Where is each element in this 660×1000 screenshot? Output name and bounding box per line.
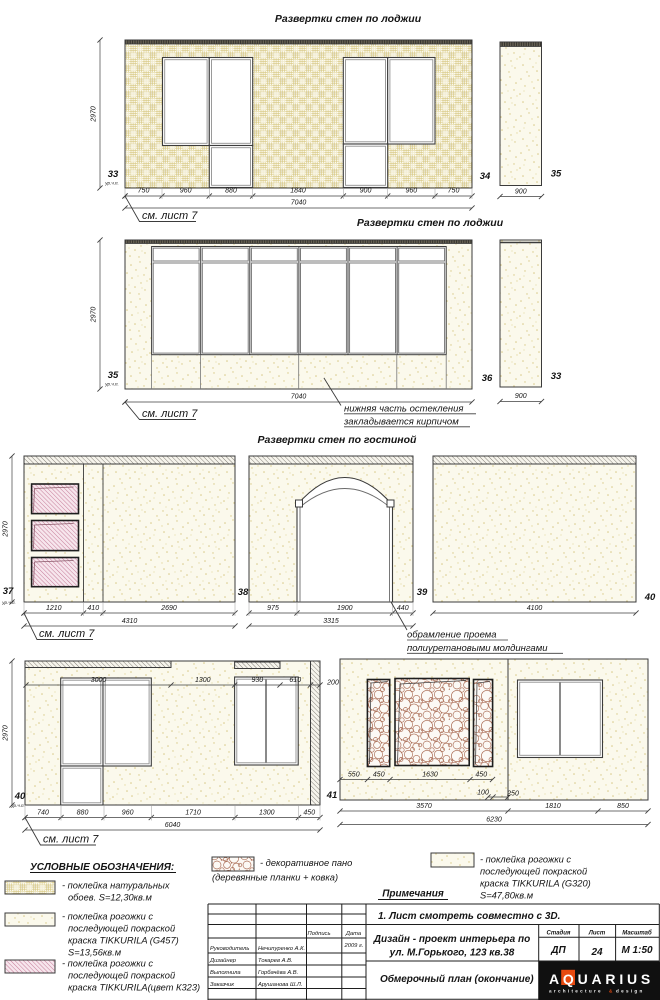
svg-text:последующей покраской: последующей покраской <box>68 924 175 934</box>
svg-text:250: 250 <box>506 791 519 798</box>
svg-text:40: 40 <box>14 791 26 802</box>
svg-text:6230: 6230 <box>486 817 502 824</box>
svg-text:2970: 2970 <box>3 725 10 742</box>
svg-text:410: 410 <box>87 605 99 612</box>
svg-text:Выполнила: Выполнила <box>210 970 241 976</box>
svg-text:УСЛОВНЫЕ ОБОЗНАЧЕНИЯ:: УСЛОВНЫЕ ОБОЗНАЧЕНИЯ: <box>30 862 174 873</box>
svg-text:4100: 4100 <box>527 605 543 612</box>
svg-text:М 1:50: М 1:50 <box>621 945 653 956</box>
svg-text:41: 41 <box>326 790 338 801</box>
svg-text:2970: 2970 <box>91 307 98 324</box>
svg-text:ур.ч.п.: ур.ч.п. <box>1 600 16 605</box>
svg-text:880: 880 <box>77 810 89 817</box>
svg-text:740: 740 <box>37 810 49 817</box>
svg-text:Руководитель: Руководитель <box>210 946 249 952</box>
svg-text:- декоративное пано: - декоративное пано <box>260 858 352 868</box>
svg-text:1210: 1210 <box>46 605 62 612</box>
svg-text:Дизайнер: Дизайнер <box>209 957 237 964</box>
svg-text:440: 440 <box>397 605 409 612</box>
svg-text:2009 г.: 2009 г. <box>344 943 364 949</box>
svg-text:Примечания: Примечания <box>382 889 444 900</box>
svg-text:100: 100 <box>477 790 489 797</box>
svg-text:750: 750 <box>138 188 150 195</box>
svg-text:960: 960 <box>122 810 134 817</box>
svg-text:2970: 2970 <box>91 106 98 123</box>
svg-text:33: 33 <box>551 371 562 382</box>
svg-text:S=13,56кв.м: S=13,56кв.м <box>68 948 122 958</box>
svg-text:39: 39 <box>417 587 428 598</box>
svg-text:краска TIKKURILA (G320): краска TIKKURILA (G320) <box>480 879 591 889</box>
svg-text:1900: 1900 <box>337 605 353 612</box>
svg-text:ул. М.Горького, 123 кв.38: ул. М.Горького, 123 кв.38 <box>389 948 515 959</box>
svg-text:см. лист 7: см. лист 7 <box>142 408 198 420</box>
svg-text:Подпись: Подпись <box>308 931 331 937</box>
svg-text:Развертки стен по лоджии: Развертки стен по лоджии <box>275 13 422 25</box>
svg-text:см. лист 7: см. лист 7 <box>142 210 198 222</box>
svg-text:6040: 6040 <box>165 822 181 829</box>
svg-text:35: 35 <box>108 370 119 381</box>
svg-text:4310: 4310 <box>122 618 138 625</box>
svg-text:975: 975 <box>267 605 279 612</box>
svg-text:(деревянные планки + ковка): (деревянные планки + ковка) <box>212 873 338 883</box>
svg-text:Обмерочный план (окончание): Обмерочный план (окончание) <box>380 973 534 985</box>
svg-text:2970: 2970 <box>3 521 10 538</box>
svg-text:ур.ч.п.: ур.ч.п. <box>10 803 25 808</box>
svg-text:550: 550 <box>348 772 360 779</box>
svg-text:850: 850 <box>617 803 629 810</box>
svg-text:обрамление проема: обрамление проема <box>407 630 497 641</box>
svg-text:960: 960 <box>406 188 418 195</box>
svg-text:1300: 1300 <box>195 677 211 684</box>
svg-text:960: 960 <box>180 188 192 195</box>
svg-text:37: 37 <box>3 586 14 597</box>
svg-text:450: 450 <box>475 772 487 779</box>
svg-text:930: 930 <box>251 677 263 684</box>
svg-text:36: 36 <box>482 373 493 384</box>
svg-text:7040: 7040 <box>291 200 307 207</box>
svg-text:Нечипуренко А.К.: Нечипуренко А.К. <box>258 946 305 952</box>
svg-text:880: 880 <box>225 188 237 195</box>
svg-text:33: 33 <box>108 169 119 180</box>
svg-text:450: 450 <box>373 772 385 779</box>
svg-text:1710: 1710 <box>185 810 201 817</box>
svg-text:Масштаб: Масштаб <box>622 930 652 937</box>
svg-text:AQUARIUS: AQUARIUS <box>549 971 654 987</box>
svg-text:- поклейка рогожки с: - поклейка рогожки с <box>62 912 153 922</box>
svg-text:краска TIKKURILA(цвет К323): краска TIKKURILA(цвет К323) <box>68 983 200 993</box>
svg-text:последующей покраской: последующей покраской <box>480 867 587 877</box>
svg-text:7040: 7040 <box>291 394 307 401</box>
svg-text:см. лист 7: см. лист 7 <box>39 628 95 640</box>
svg-text:3000: 3000 <box>91 677 107 684</box>
svg-text:закладывается кирпичом: закладывается кирпичом <box>343 417 459 428</box>
svg-text:Заказчик: Заказчик <box>210 982 234 988</box>
svg-text:нижняя часть остекления: нижняя часть остекления <box>344 404 464 415</box>
svg-text:- поклейка рогожки с: - поклейка рогожки с <box>62 959 153 969</box>
svg-text:3315: 3315 <box>323 618 339 625</box>
svg-text:Токарев А.В.: Токарев А.В. <box>258 958 293 964</box>
svg-text:ур.ч.п.: ур.ч.п. <box>104 382 119 387</box>
svg-text:38: 38 <box>238 587 249 598</box>
svg-text:обоев. S=12,30кв.м: обоев. S=12,30кв.м <box>68 893 152 903</box>
svg-text:architecture: architecture <box>549 989 603 994</box>
svg-text:2690: 2690 <box>160 605 177 612</box>
svg-text:Дата: Дата <box>345 931 362 937</box>
svg-text:1810: 1810 <box>545 803 561 810</box>
svg-text:200: 200 <box>326 680 339 687</box>
svg-text:35: 35 <box>551 169 562 180</box>
svg-text:краска TIKKURILA (G457): краска TIKKURILA (G457) <box>68 936 179 946</box>
svg-text:1. Лист смотреть совместно с 3: 1. Лист смотреть совместно с 3D. <box>378 911 560 922</box>
svg-text:34: 34 <box>480 171 491 182</box>
svg-text:900: 900 <box>515 189 527 196</box>
svg-text:Развертки стен по лоджии: Развертки стен по лоджии <box>357 217 504 229</box>
svg-text:450: 450 <box>303 810 315 817</box>
svg-text:полиуретановыми молдингами: полиуретановыми молдингами <box>407 643 548 654</box>
svg-text:ДП: ДП <box>550 945 566 956</box>
svg-text:ур.ч.п.: ур.ч.п. <box>104 181 119 186</box>
svg-text:Развертки стен по гостиной: Развертки стен по гостиной <box>258 434 418 446</box>
svg-text:Дизайн - проект интерьера по: Дизайн - проект интерьера по <box>373 934 530 945</box>
svg-text:Горбачёва А.В.: Горбачёва А.В. <box>258 970 298 976</box>
svg-text:1840: 1840 <box>290 188 306 195</box>
svg-text:24: 24 <box>590 947 603 958</box>
svg-text:- поклейка рогожки с: - поклейка рогожки с <box>480 855 571 865</box>
svg-text:1300: 1300 <box>259 810 275 817</box>
svg-text:Лист: Лист <box>588 931 606 937</box>
svg-text:900: 900 <box>515 393 527 400</box>
svg-text:900: 900 <box>360 188 372 195</box>
svg-text:Арушанова Ш.Л.: Арушанова Ш.Л. <box>257 982 303 988</box>
svg-text:design: design <box>616 989 645 994</box>
svg-text:см. лист 7: см. лист 7 <box>43 834 99 846</box>
svg-text:Стадия: Стадия <box>547 931 571 937</box>
svg-text:750: 750 <box>448 188 460 195</box>
svg-text:40: 40 <box>644 592 656 603</box>
svg-text:последующей покраской: последующей покраской <box>68 971 175 981</box>
svg-text:S=47,80кв.м: S=47,80кв.м <box>480 891 534 901</box>
svg-text:3570: 3570 <box>416 803 432 810</box>
svg-text:610: 610 <box>289 677 301 684</box>
svg-text:1630: 1630 <box>422 772 438 779</box>
svg-text:- поклейка натуральных: - поклейка натуральных <box>62 881 170 891</box>
